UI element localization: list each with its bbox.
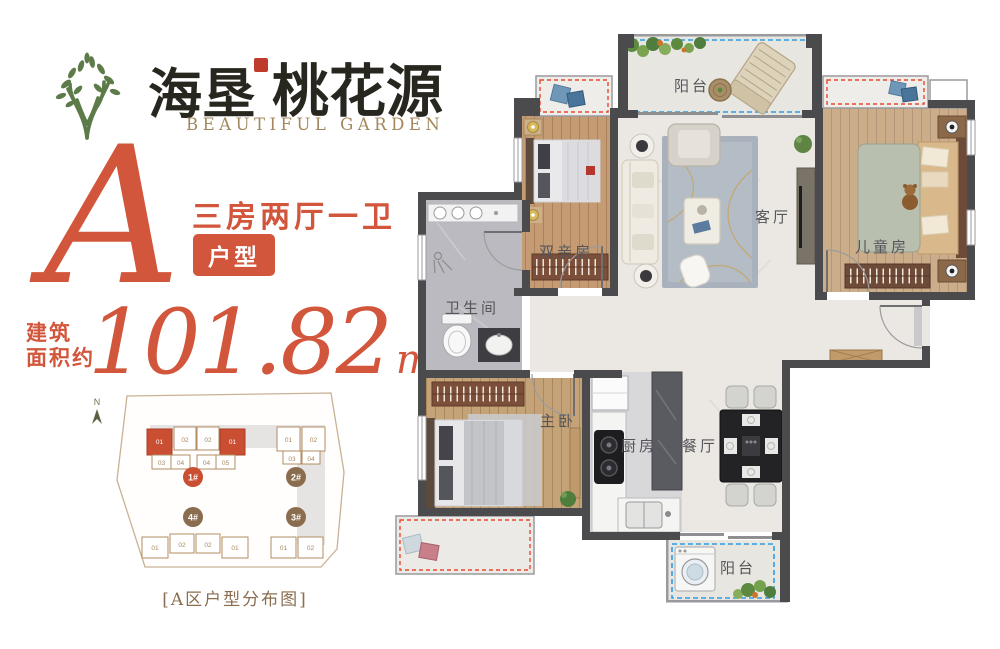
svg-text:03: 03 xyxy=(158,460,166,467)
dining-table-icon xyxy=(720,410,782,482)
svg-text:01: 01 xyxy=(156,439,164,446)
svg-text:03: 03 xyxy=(288,456,296,463)
parents-bay-window xyxy=(536,76,612,116)
parents-bed-icon xyxy=(526,138,600,204)
north-arrow-icon: N xyxy=(92,397,102,424)
label-kitchen: 厨房 xyxy=(621,438,657,455)
coffee-table-icon xyxy=(684,198,720,244)
area-value: 101.82 xyxy=(88,290,391,395)
pillow-icon xyxy=(567,91,585,108)
label-parents: 双亲房 xyxy=(539,244,593,261)
master-bed-icon xyxy=(426,418,522,508)
pillow-icon xyxy=(419,543,439,561)
svg-text:2#: 2# xyxy=(291,473,301,483)
label-dining: 餐厅 xyxy=(682,438,718,455)
pillow-icon xyxy=(901,87,918,102)
svg-text:1#: 1# xyxy=(188,473,198,483)
area-prefix-line2: 面积约 xyxy=(26,347,95,372)
label-balcony-top: 阳台 xyxy=(674,78,710,95)
plant-icon xyxy=(794,135,812,153)
svg-text:02: 02 xyxy=(178,542,186,549)
toilet-icon xyxy=(442,314,472,357)
flex-terrace xyxy=(396,516,534,574)
label-master: 主卧 xyxy=(540,413,576,430)
brand-seal-icon xyxy=(254,58,268,72)
label-bathroom: 卫生间 xyxy=(445,300,499,317)
label-living: 客厅 xyxy=(755,209,791,226)
unit-layout-text: 三房两厅一卫 xyxy=(192,192,396,236)
sofa-icon xyxy=(622,160,658,264)
area-prefix: 建筑 面积约 xyxy=(26,322,95,372)
svg-text:02: 02 xyxy=(204,437,212,444)
svg-text:05: 05 xyxy=(222,460,230,467)
svg-text:01: 01 xyxy=(285,437,293,444)
svg-text:02: 02 xyxy=(204,542,212,549)
flyer-page: 海垦 桃花源 BEAUTIFUL GARDEN A 三房两厅一卫 户型 建筑 面… xyxy=(0,0,1000,649)
washbasin-icon xyxy=(478,328,520,362)
site-plan-caption: [A区户型分布图] xyxy=(145,585,325,610)
svg-text:02: 02 xyxy=(310,437,318,444)
svg-text:4#: 4# xyxy=(188,513,198,523)
stove-icon xyxy=(594,430,624,484)
svg-text:04: 04 xyxy=(203,460,211,467)
unit-type-badge: 户型 xyxy=(193,234,275,276)
unit-letter: A xyxy=(44,122,181,312)
armchair-icon xyxy=(668,124,720,166)
svg-text:N: N xyxy=(94,397,101,407)
svg-text:02: 02 xyxy=(307,545,315,552)
wardrobe-icon xyxy=(432,382,524,406)
svg-text:01: 01 xyxy=(280,545,288,552)
vanity-icon xyxy=(428,204,518,222)
entry-threshold xyxy=(914,306,922,346)
balcony-table-icon xyxy=(709,79,731,101)
sink-icon xyxy=(618,498,680,532)
site-plan: N 01 02 02 01 03 04 04 05 1# xyxy=(70,385,370,615)
svg-text:01: 01 xyxy=(229,439,237,446)
label-balcony-bottom: 阳台 xyxy=(720,560,756,577)
wardrobe-icon xyxy=(845,264,930,288)
svg-text:01: 01 xyxy=(151,545,159,552)
svg-text:04: 04 xyxy=(307,456,315,463)
svg-text:01: 01 xyxy=(231,545,239,552)
floor-plan: 阳台 xyxy=(390,20,1000,620)
teddy-bear-icon xyxy=(902,194,918,210)
tv-cabinet-icon xyxy=(797,168,815,264)
washing-machine-icon xyxy=(675,547,715,591)
label-children: 儿童房 xyxy=(855,238,909,256)
svg-text:3#: 3# xyxy=(291,513,301,523)
area-prefix-line1: 建筑 xyxy=(26,322,95,347)
svg-text:02: 02 xyxy=(181,437,189,444)
sideboard-icon xyxy=(570,428,580,498)
svg-text:04: 04 xyxy=(177,460,185,467)
